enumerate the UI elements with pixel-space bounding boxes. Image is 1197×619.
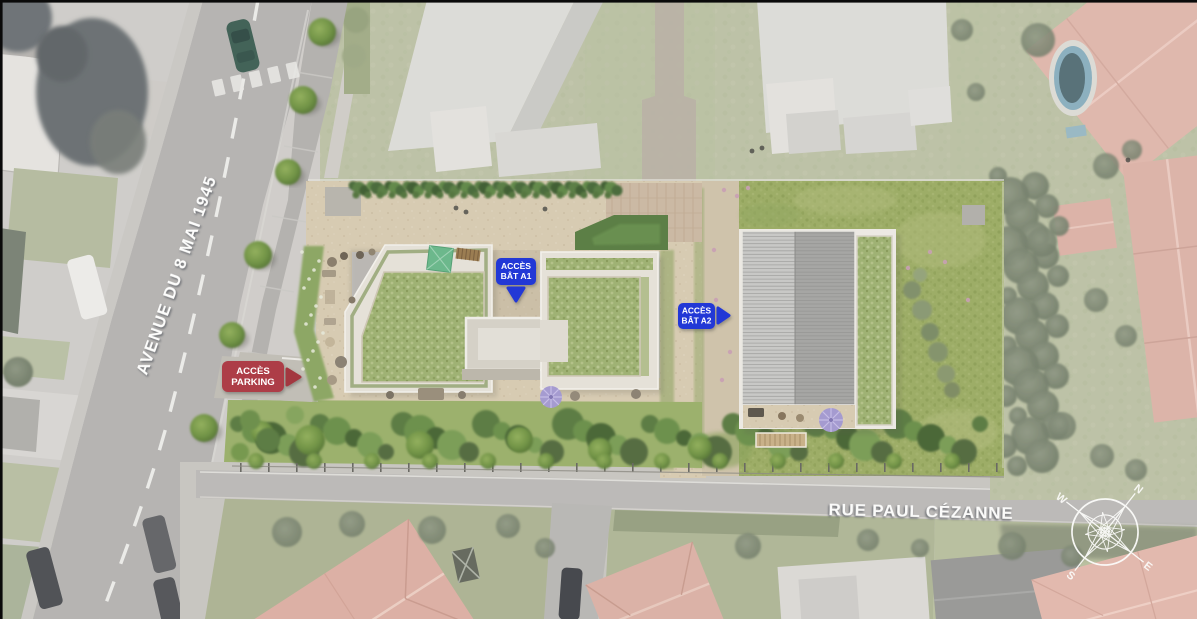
svg-text:RUE PAUL CÉZANNE: RUE PAUL CÉZANNE — [828, 500, 1013, 523]
svg-text:ACCÈS: ACCÈS — [501, 261, 531, 271]
svg-text:ACCÈS: ACCÈS — [236, 365, 270, 377]
svg-text:ACCÈS: ACCÈS — [682, 305, 712, 316]
svg-text:BÂT A1: BÂT A1 — [501, 270, 532, 281]
svg-text:PARKING: PARKING — [231, 377, 275, 388]
svg-text:BÂT A2: BÂT A2 — [682, 315, 712, 326]
